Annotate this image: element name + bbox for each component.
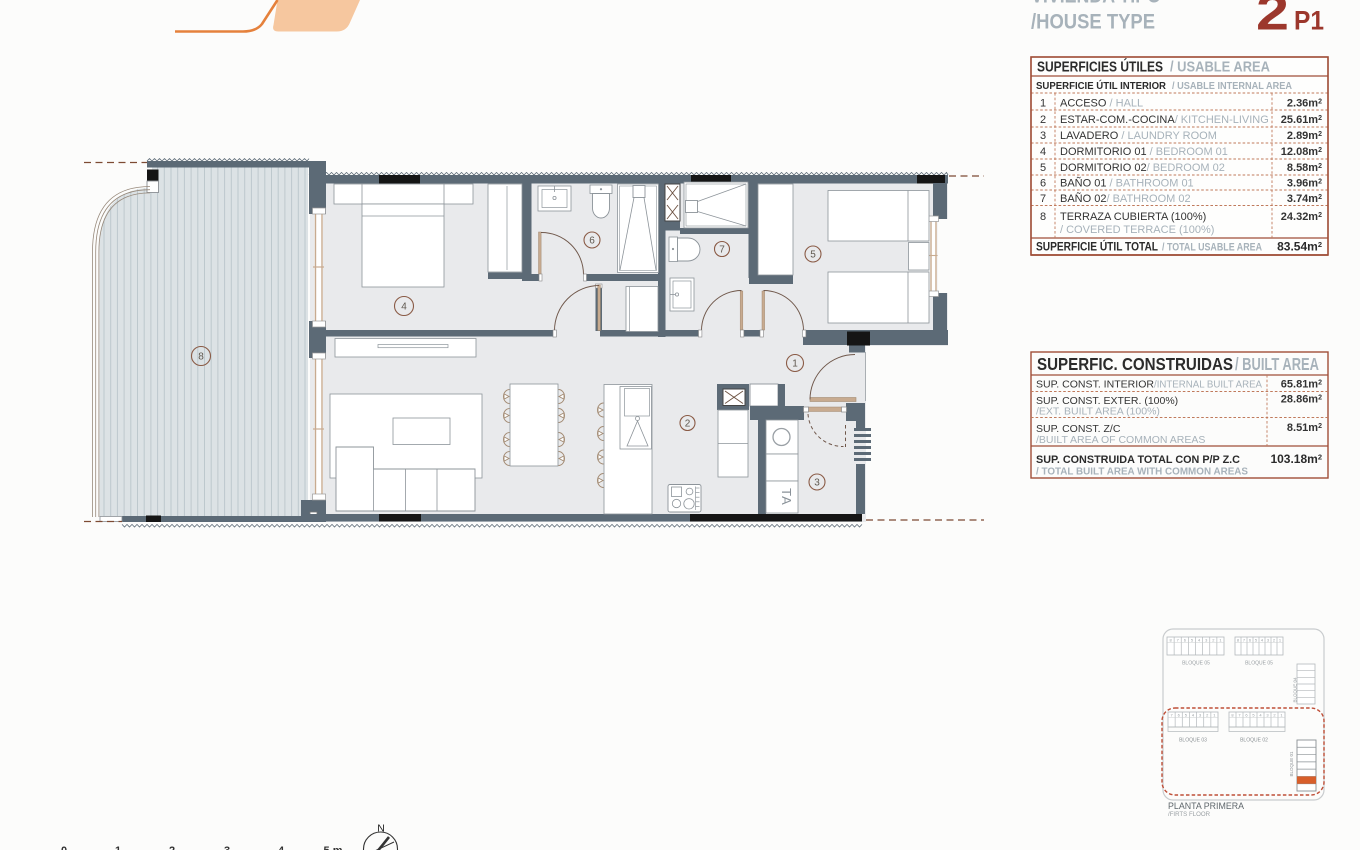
- svg-text:/ COVERED TERRACE (100%): / COVERED TERRACE (100%): [1060, 224, 1214, 236]
- svg-text:BLOQUE 05: BLOQUE 05: [1245, 661, 1273, 667]
- svg-text:BAÑO 01 / BATHROOM 01: BAÑO 01 / BATHROOM 01: [1060, 177, 1194, 190]
- svg-text:BLOQUE 03: BLOQUE 03: [1179, 738, 1207, 744]
- svg-text:3.74m2: 3.74m2: [1287, 193, 1322, 205]
- svg-text:/ USABLE INTERNAL AREA: / USABLE INTERNAL AREA: [1172, 80, 1292, 92]
- svg-text:ACCESO / HALL: ACCESO / HALL: [1060, 98, 1143, 110]
- svg-text:3: 3: [814, 478, 820, 489]
- svg-text:2: 2: [169, 845, 175, 850]
- svg-text:4: 4: [1040, 146, 1046, 158]
- svg-text:28.86m2: 28.86m2: [1281, 394, 1322, 406]
- svg-text:DORMITORIO 01 / BEDROOM 01: DORMITORIO 01 / BEDROOM 01: [1060, 146, 1228, 158]
- svg-text:12.08m2: 12.08m2: [1281, 146, 1322, 158]
- svg-text:/ BUILT AREA: / BUILT AREA: [1235, 354, 1319, 374]
- svg-text:LAVADERO / LAUNDRY ROOM: LAVADERO / LAUNDRY ROOM: [1060, 130, 1217, 142]
- svg-text:SUPERFICIE ÚTIL INTERIOR: SUPERFICIE ÚTIL INTERIOR: [1036, 79, 1166, 92]
- svg-text:2: 2: [1256, 0, 1289, 41]
- svg-text:4: 4: [278, 845, 285, 850]
- svg-text:2.36m2: 2.36m2: [1287, 98, 1322, 110]
- svg-text:4: 4: [401, 302, 407, 313]
- svg-text:0: 0: [61, 845, 67, 850]
- svg-text:1: 1: [115, 845, 121, 850]
- svg-text:BAÑO 02/ BATHROOM 02: BAÑO 02/ BATHROOM 02: [1060, 192, 1191, 205]
- svg-text:8: 8: [1040, 211, 1046, 223]
- svg-text:3: 3: [1040, 130, 1046, 142]
- svg-text:TERRAZA CUBIERTA (100%): TERRAZA CUBIERTA (100%): [1060, 211, 1206, 223]
- svg-text:BLOQUE 01: BLOQUE 01: [1289, 751, 1294, 777]
- svg-text:N: N: [377, 823, 385, 835]
- svg-text:1: 1: [1040, 98, 1046, 110]
- svg-text:7: 7: [1040, 193, 1046, 205]
- svg-text:7: 7: [719, 245, 725, 256]
- svg-text:6: 6: [589, 236, 595, 247]
- svg-text:SUPERFICIES ÚTILES: SUPERFICIES ÚTILES: [1037, 58, 1163, 76]
- svg-text:TA: TA: [779, 488, 794, 506]
- svg-text:/INTERNAL BUILT AREA: /INTERNAL BUILT AREA: [1154, 379, 1262, 391]
- svg-text:ESTAR-COM.-COCINA/ KITCHEN-LIV: ESTAR-COM.-COCINA/ KITCHEN-LIVING: [1060, 114, 1269, 126]
- svg-text:1: 1: [792, 359, 798, 370]
- svg-text:8.58m2: 8.58m2: [1287, 162, 1322, 174]
- svg-text:SUP. CONST. INTERIOR: SUP. CONST. INTERIOR: [1036, 379, 1154, 391]
- svg-text:BLOQUE 05: BLOQUE 05: [1182, 661, 1210, 667]
- svg-text:BLOQUE 04: BLOQUE 04: [1293, 677, 1298, 703]
- svg-text:8: 8: [198, 352, 204, 363]
- svg-text:25.61m2: 25.61m2: [1281, 114, 1322, 126]
- svg-text:2: 2: [685, 419, 691, 430]
- svg-text:P1: P1: [1294, 6, 1324, 36]
- svg-text:8.51m2: 8.51m2: [1287, 422, 1322, 434]
- svg-text:/ USABLE AREA: / USABLE AREA: [1170, 60, 1270, 76]
- svg-text:5 m: 5 m: [324, 845, 343, 850]
- svg-text:3: 3: [224, 845, 230, 850]
- svg-text:/EXT. BUILT AREA (100%): /EXT. BUILT AREA (100%): [1036, 406, 1160, 418]
- svg-text:BLOQUE 02: BLOQUE 02: [1240, 738, 1268, 744]
- svg-text:83.54m2: 83.54m2: [1277, 240, 1322, 254]
- svg-text:/FIRTS FLOOR: /FIRTS FLOOR: [1168, 811, 1210, 818]
- svg-text:SUPERFICIE ÚTIL TOTAL: SUPERFICIE ÚTIL TOTAL: [1036, 241, 1158, 254]
- svg-text:2.89m2: 2.89m2: [1287, 130, 1322, 142]
- svg-text:/HOUSE TYPE: /HOUSE TYPE: [1031, 11, 1155, 34]
- svg-text:SUPERFIC. CONSTRUIDAS: SUPERFIC. CONSTRUIDAS: [1037, 354, 1233, 374]
- svg-text:6: 6: [1040, 178, 1046, 190]
- svg-text:/ TOTAL USABLE AREA: / TOTAL USABLE AREA: [1162, 242, 1262, 254]
- svg-text:SUP. CONSTRUIDA TOTAL CON P/P: SUP. CONSTRUIDA TOTAL CON P/P Z.C: [1036, 454, 1240, 466]
- svg-text:65.81m2: 65.81m2: [1281, 379, 1322, 391]
- svg-text:VIVIENDA TIPO: VIVIENDA TIPO: [1031, 0, 1161, 8]
- svg-text:3.96m2: 3.96m2: [1287, 178, 1322, 190]
- svg-text:5: 5: [1040, 162, 1046, 174]
- svg-text:5: 5: [810, 250, 816, 261]
- svg-text:DORMITORIO 02/ BEDROOM 02: DORMITORIO 02/ BEDROOM 02: [1060, 162, 1225, 174]
- svg-text:/BUILT AREA OF COMMON AREAS: /BUILT AREA OF COMMON AREAS: [1036, 434, 1205, 446]
- svg-text:103.18m2: 103.18m2: [1270, 452, 1322, 466]
- svg-text:/ TOTAL BUILT AREA WITH COMMON: / TOTAL BUILT AREA WITH COMMON AREAS: [1036, 466, 1248, 478]
- svg-text:2: 2: [1040, 114, 1046, 126]
- svg-text:24.32m2: 24.32m2: [1281, 211, 1322, 223]
